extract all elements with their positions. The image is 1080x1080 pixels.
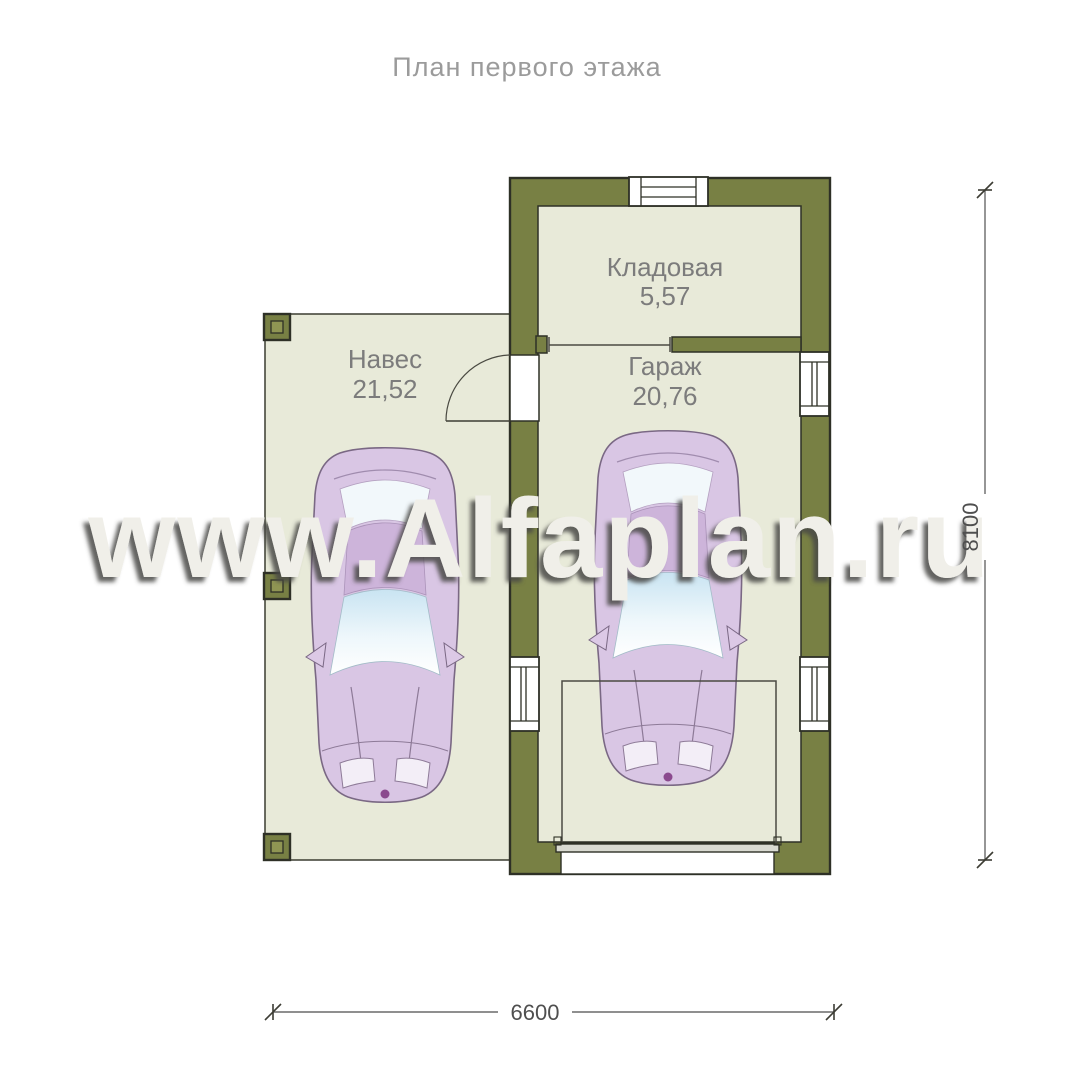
window-right-upper: [800, 352, 829, 416]
room-area-garage: 20,76: [632, 381, 697, 411]
floor-plan-svg: План первого этажа Навес 21,52: [0, 0, 1080, 1080]
window-left: [510, 657, 539, 731]
dimension-width-label: 6600: [511, 1000, 560, 1025]
partition-wall-right: [672, 337, 801, 352]
partition-wall-stub: [536, 336, 547, 353]
carport-column-bottom-left: [264, 834, 290, 860]
room-name-garage: Гараж: [628, 351, 702, 381]
room-area-storage: 5,57: [640, 281, 691, 311]
window-top: [629, 177, 708, 206]
floor-plan-page: План первого этажа Навес 21,52: [0, 0, 1080, 1080]
gate-panel: [556, 844, 779, 852]
room-name-carport: Навес: [348, 344, 422, 374]
garage-gate: [554, 837, 781, 874]
dimension-horizontal: 6600: [265, 1000, 842, 1025]
window-right-lower: [800, 657, 829, 731]
room-area-carport: 21,52: [352, 374, 417, 404]
watermark: www.Alfaplan.ru: [87, 476, 991, 601]
door-opening: [510, 355, 539, 421]
page-title: План первого этажа: [392, 52, 661, 82]
room-name-storage: Кладовая: [607, 252, 723, 282]
carport-column-top-left: [264, 314, 290, 340]
dimension-height-label: 8100: [958, 503, 983, 552]
